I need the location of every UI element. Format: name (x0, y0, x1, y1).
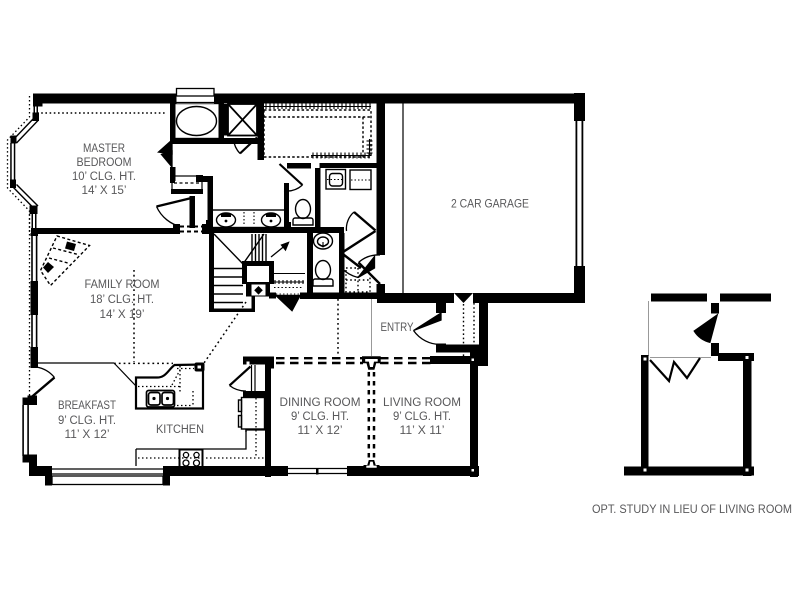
svg-text:LIVING ROOM: LIVING ROOM (383, 395, 461, 409)
svg-text:2 CAR GARAGE: 2 CAR GARAGE (451, 197, 529, 211)
svg-text:DINING ROOM: DINING ROOM (280, 395, 361, 409)
svg-text:11’ X 11’: 11’ X 11’ (400, 423, 445, 437)
svg-text:FAMILY ROOM: FAMILY ROOM (85, 277, 160, 291)
svg-text:OPT. STUDY IN LIEU OF LIVING R: OPT. STUDY IN LIEU OF LIVING ROOM (592, 502, 792, 516)
svg-text:14’ X 15’: 14’ X 15’ (82, 183, 127, 197)
svg-text:KITCHEN: KITCHEN (156, 422, 204, 436)
svg-text:11’ X 12’: 11’ X 12’ (298, 423, 343, 437)
svg-text:BREAKFAST: BREAKFAST (58, 398, 116, 412)
svg-text:ENTRY: ENTRY (381, 320, 414, 334)
svg-text:9’ CLG. HT.: 9’ CLG. HT. (58, 413, 116, 427)
svg-text:9’ CLG. HT.: 9’ CLG. HT. (291, 409, 349, 423)
svg-text:9’ CLG. HT.: 9’ CLG. HT. (393, 409, 451, 423)
svg-text:BEDROOM: BEDROOM (77, 155, 132, 169)
svg-text:11’ X 12’: 11’ X 12’ (65, 427, 110, 441)
svg-text:10’ CLG. HT.: 10’ CLG. HT. (72, 169, 136, 183)
svg-text:MASTER: MASTER (83, 141, 125, 155)
svg-text:18’ CLG. HT.: 18’ CLG. HT. (90, 292, 154, 306)
svg-text:14’ X 19’: 14’ X 19’ (100, 307, 145, 321)
